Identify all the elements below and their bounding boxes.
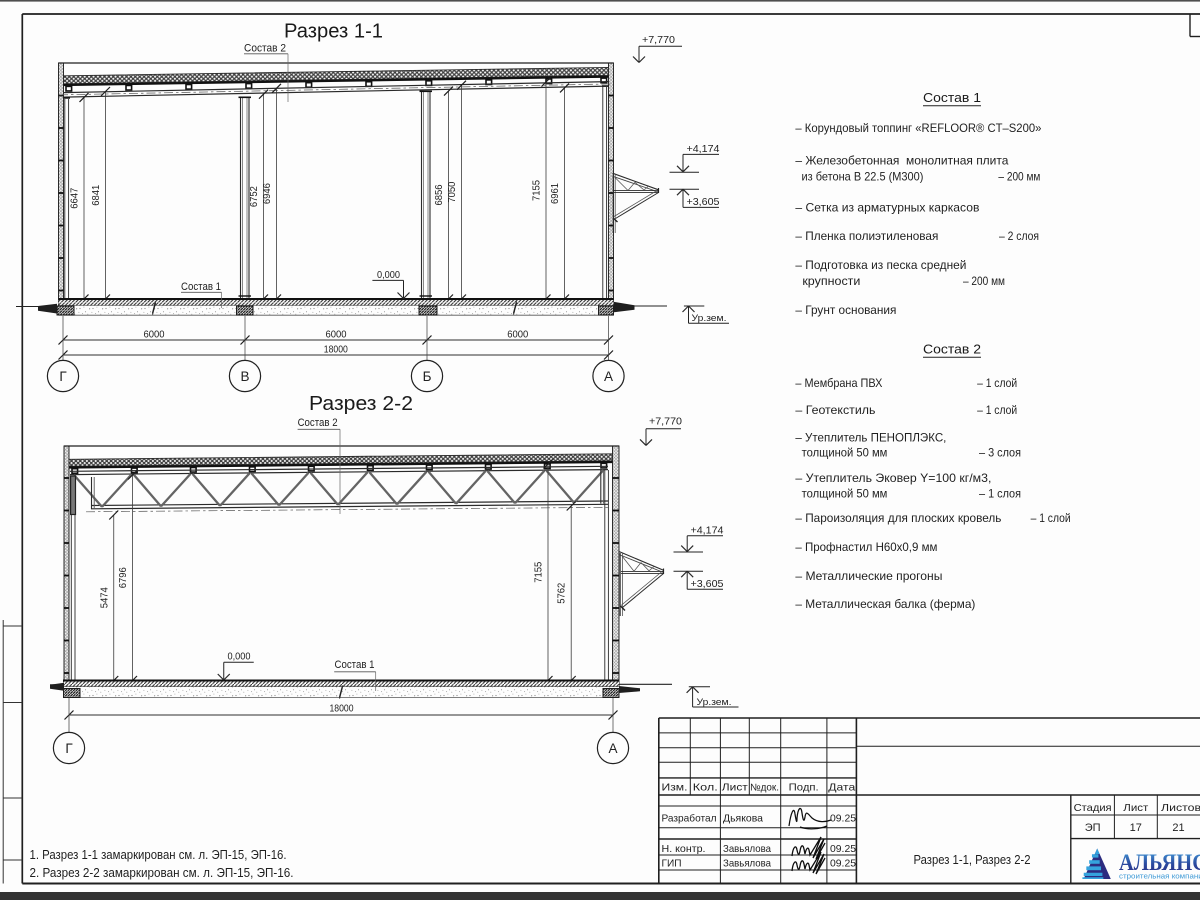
svg-text:Состав 2: Состав 2 — [923, 342, 981, 357]
svg-text:– 200 мм: – 200 мм — [998, 170, 1040, 184]
svg-text:– 2 слоя: – 2 слоя — [999, 229, 1039, 243]
svg-text:Стадия: Стадия — [1074, 802, 1112, 814]
svg-text:Разрез 2-2: Разрез 2-2 — [309, 392, 413, 415]
svg-text:+7,770: +7,770 — [649, 416, 682, 428]
svg-text:09.25: 09.25 — [830, 843, 856, 855]
svg-text:6796: 6796 — [118, 567, 129, 588]
svg-text:5474: 5474 — [99, 587, 110, 608]
svg-text:Лист: Лист — [1123, 802, 1148, 814]
svg-text:Лист: Лист — [722, 782, 748, 794]
svg-text:Подп.: Подп. — [789, 782, 819, 794]
svg-text:Завьялова: Завьялова — [723, 843, 771, 855]
svg-text:крупности: крупности — [795, 274, 860, 288]
svg-text:Г: Г — [59, 369, 67, 384]
svg-text:+3,605: +3,605 — [691, 578, 724, 590]
svg-text:– 1 слой: – 1 слой — [1031, 511, 1071, 525]
svg-text:АЛЬЯНС: АЛЬЯНС — [1119, 850, 1200, 875]
svg-text:– Грунт основания: – Грунт основания — [795, 303, 896, 317]
svg-text:– Утеплитель ПЕНОПЛЭКС,: – Утеплитель ПЕНОПЛЭКС, — [795, 431, 946, 445]
svg-text:5762: 5762 — [557, 582, 568, 603]
svg-text:Состав 1: Состав 1 — [335, 659, 375, 671]
svg-text:А: А — [604, 369, 613, 384]
svg-text:ГИП: ГИП — [662, 858, 682, 870]
svg-text:– 3 слоя: – 3 слоя — [979, 446, 1021, 460]
svg-text:6961: 6961 — [550, 183, 561, 204]
svg-text:7155: 7155 — [534, 561, 545, 582]
svg-text:– Сетка из арматурных каркасов: – Сетка из арматурных каркасов — [795, 201, 979, 215]
svg-text:18000: 18000 — [330, 704, 354, 715]
svg-text:Разработал: Разработал — [662, 813, 717, 825]
svg-text:из бетона В 22.5 (М300): из бетона В 22.5 (М300) — [795, 170, 923, 184]
svg-text:17: 17 — [1130, 822, 1142, 834]
svg-text:А: А — [608, 741, 617, 756]
svg-text:09.25: 09.25 — [830, 813, 856, 825]
svg-text:Разрез 1-1: Разрез 1-1 — [284, 20, 383, 43]
svg-text:Состав 2: Состав 2 — [298, 417, 338, 429]
svg-text:6000: 6000 — [144, 330, 165, 341]
svg-text:6856: 6856 — [434, 184, 445, 205]
svg-text:толщиной 50 мм: толщиной 50 мм — [795, 487, 887, 501]
svg-text:– Профнастил Н60х0,9 мм: – Профнастил Н60х0,9 мм — [795, 540, 937, 554]
svg-text:– 1 слой: – 1 слой — [977, 403, 1017, 417]
svg-text:Дата: Дата — [828, 782, 855, 794]
svg-text:2. Разрез 2-2 замаркирован см.: 2. Разрез 2-2 замаркирован см. л. ЭП-15,… — [30, 866, 294, 880]
svg-text:0,000: 0,000 — [228, 651, 251, 663]
svg-text:Дьякова: Дьякова — [723, 813, 763, 825]
svg-text:1. Разрез 1-1 замаркирован см.: 1. Разрез 1-1 замаркирован см. л. ЭП-15,… — [30, 848, 287, 862]
svg-text:– 1 слой: – 1 слой — [977, 376, 1017, 390]
svg-text:+4,174: +4,174 — [687, 143, 720, 155]
svg-text:Н. контр.: Н. контр. — [662, 843, 706, 855]
svg-text:толщиной 50 мм: толщиной 50 мм — [795, 446, 887, 460]
svg-text:+3,605: +3,605 — [687, 196, 720, 208]
svg-text:В: В — [240, 369, 249, 384]
svg-text:– Подготовка из песка средней: – Подготовка из песка средней — [795, 258, 966, 272]
svg-text:Состав 2: Состав 2 — [244, 43, 286, 55]
svg-text:6946: 6946 — [262, 183, 273, 204]
svg-text:Б: Б — [423, 369, 432, 384]
svg-text:09.25: 09.25 — [830, 858, 856, 870]
svg-text:Изм.: Изм. — [662, 782, 688, 794]
svg-text:Завьялова: Завьялова — [723, 858, 771, 870]
svg-text:– Железобетонная монолитная п: – Железобетонная монолитная плита — [795, 154, 1008, 168]
svg-text:Разрез 1-1, Разрез 2-2: Разрез 1-1, Разрез 2-2 — [914, 852, 1031, 867]
svg-text:7155: 7155 — [532, 180, 543, 201]
svg-text:– 200 мм: – 200 мм — [963, 274, 1005, 288]
svg-text:0,000: 0,000 — [377, 269, 400, 281]
svg-text:№док.: №док. — [750, 783, 779, 794]
svg-text:Листов: Листов — [1161, 802, 1200, 814]
svg-text:строительная компания: строительная компания — [1119, 874, 1200, 881]
svg-text:Ур.зем.: Ур.зем. — [692, 313, 727, 324]
svg-text:6647: 6647 — [70, 187, 81, 208]
svg-text:21: 21 — [1172, 822, 1184, 834]
svg-text:Состав 1: Состав 1 — [923, 90, 981, 105]
svg-text:– Металлические прогоны: – Металлические прогоны — [795, 569, 942, 583]
svg-text:– Пленка полиэтиленовая: – Пленка полиэтиленовая — [795, 229, 938, 243]
svg-text:6000: 6000 — [326, 330, 347, 341]
svg-text:Кол.: Кол. — [693, 782, 718, 794]
svg-text:– 1 слоя: – 1 слоя — [979, 487, 1021, 501]
svg-text:– Утеплитель Эковер Y=100 кг/м: – Утеплитель Эковер Y=100 кг/м3, — [795, 471, 991, 485]
svg-text:– Корундовый топпинг «REFLOOR®: – Корундовый топпинг «REFLOOR® CT–S200» — [795, 121, 1041, 135]
svg-text:+7,770: +7,770 — [642, 34, 675, 46]
svg-text:6000: 6000 — [507, 330, 528, 341]
svg-text:– Геотекстиль: – Геотекстиль — [795, 403, 875, 417]
svg-text:– Пароизоляция для плоских кро: – Пароизоляция для плоских кровель — [795, 511, 1001, 525]
svg-text:Ур.зем.: Ур.зем. — [697, 697, 732, 708]
svg-text:7050: 7050 — [447, 181, 458, 202]
svg-text:ЭП: ЭП — [1085, 822, 1101, 834]
svg-text:Состав 1: Состав 1 — [181, 281, 221, 293]
svg-text:– Мембрана ПВХ: – Мембрана ПВХ — [795, 376, 882, 390]
svg-text:18000: 18000 — [324, 345, 348, 356]
svg-text:+4,174: +4,174 — [691, 525, 724, 537]
svg-text:6841: 6841 — [91, 184, 102, 205]
svg-text:6752: 6752 — [249, 186, 260, 207]
svg-text:Г: Г — [65, 741, 73, 756]
svg-text:– Металлическая балка (ферма): – Металлическая балка (ферма) — [795, 597, 975, 611]
